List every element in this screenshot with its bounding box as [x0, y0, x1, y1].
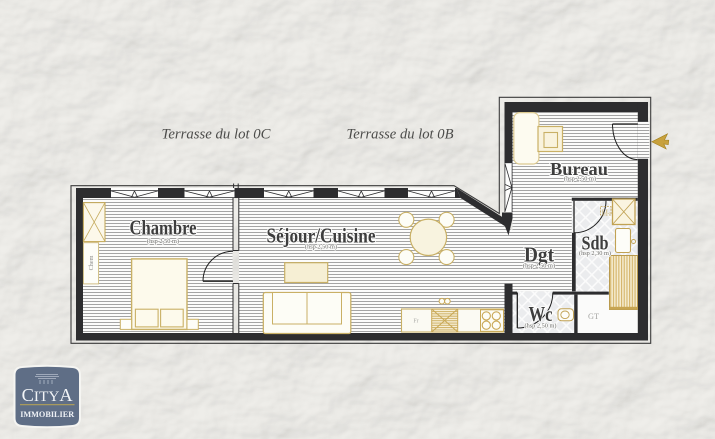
svg-text:Chambre: Chambre: [130, 216, 197, 240]
svg-text:Fr: Fr: [413, 319, 418, 325]
svg-text:(hsp 2,50 m): (hsp 2,50 m): [524, 323, 556, 330]
svg-text:LL: LL: [602, 209, 610, 216]
svg-text:(hsp 2,50 m): (hsp 2,50 m): [564, 176, 596, 183]
svg-text:(hsp 2,50 m): (hsp 2,50 m): [147, 238, 179, 245]
svg-text:GT: GT: [588, 312, 599, 321]
svg-text:(hsp 2,30 m): (hsp 2,30 m): [579, 250, 611, 257]
svg-text:(hsp 2,50 m): (hsp 2,50 m): [523, 263, 555, 270]
svg-text:Terrasse du lot 0B: Terrasse du lot 0B: [347, 127, 454, 143]
svg-text:Chem: Chem: [88, 255, 95, 270]
svg-text:(hsp 2,50 m): (hsp 2,50 m): [305, 244, 337, 251]
svg-text:IMMOBILIER: IMMOBILIER: [20, 409, 75, 419]
svg-text:Terrasse du lot 0C: Terrasse du lot 0C: [162, 127, 271, 143]
